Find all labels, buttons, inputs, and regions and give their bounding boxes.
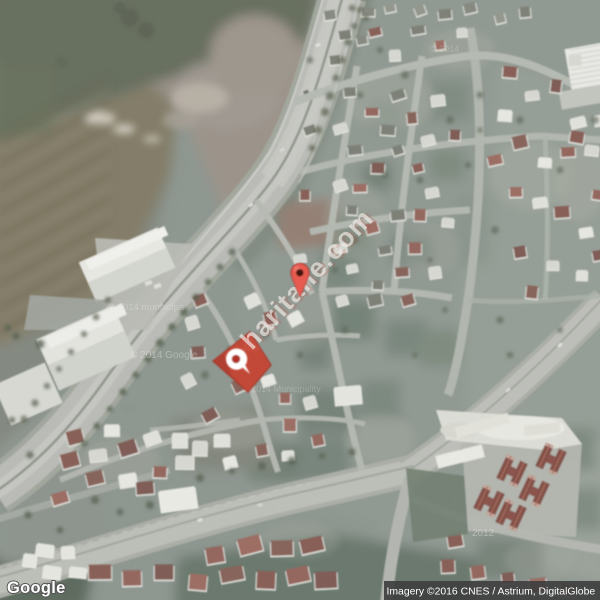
svg-text:© 2014 Google: © 2014 Google	[130, 350, 198, 361]
svg-text:© 2014 muniscipa: © 2014 muniscipa	[108, 302, 185, 313]
svg-text:© 2014: © 2014	[430, 44, 459, 54]
svg-text:Imagery ©2016 CNES / Astrium,: Imagery ©2016 CNES / Astrium, DigitalGlo…	[387, 587, 596, 598]
svg-text:2012: 2012	[472, 528, 495, 539]
svg-text:Google: Google	[7, 579, 66, 597]
